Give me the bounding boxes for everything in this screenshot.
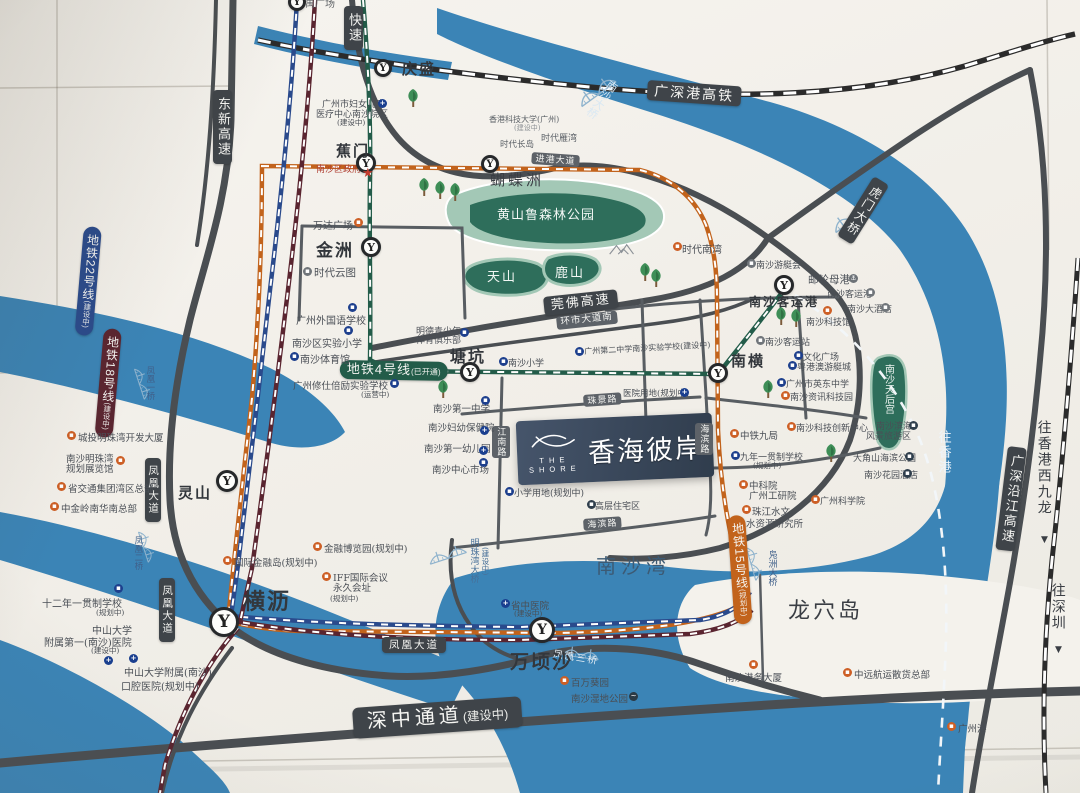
poi-label: 南沙客运站 [765,335,810,348]
station-label: 横沥 [243,584,291,616]
poi-label: (建设中) [91,645,119,656]
map-label: 南沙大桥 [584,78,619,120]
b-poi-icon: ▪ [731,451,740,460]
o-poi-icon: ▪ [50,502,59,511]
poi-label: 万达广场 [313,217,353,232]
poi-label: 水资源研究所 [746,516,803,530]
o-poi-icon: ▪ [322,572,331,581]
station-label: 金洲 [316,236,354,261]
road-badge: 海滨路 [583,516,622,531]
poi-label: 百万葵园 [571,675,609,689]
road-badge: 东新高速 [213,90,232,164]
o-poi-icon: ▪ [354,218,363,227]
road-badge: 虎门大桥 [837,176,889,245]
poi-label: 南沙区实验小学 [292,335,362,350]
w-poi-icon: ~ [629,692,638,701]
map-label: 凤凰二桥 [133,536,142,570]
poi-label: 粤港澳游艇城 [797,360,851,373]
poi-label: 广州工研院 [749,488,797,502]
poi-label: 邮轮母港 [808,272,850,287]
map-label: 南沙湾 [596,556,671,577]
poi-label: 南沙小学 [508,356,544,369]
map-label: 明珠湾大桥 [468,538,477,583]
o-poi-icon: ▪ [730,429,739,438]
map-label: 天山 [487,271,517,285]
road-badge: 深中通道(建设中) [352,696,523,739]
metro-station: Y [708,363,728,383]
poi-label: 中山大学附属(南沙) [124,664,212,679]
metro-station: Y [481,155,499,173]
poi-label: 南沙湿地公园 [571,691,628,705]
poi-label: 南沙游艇会 [756,258,801,271]
metro-station: Y [216,470,238,492]
road-badge: 进港大道 [531,152,580,168]
badge-status: (规划中) [738,589,749,617]
g-poi-icon: ▪ [303,267,312,276]
b-poi-icon: ▪ [344,326,353,335]
b-poi-icon: ▪ [788,361,797,370]
b-poi-icon: ▪ [348,303,357,312]
b-poi-icon: ▪ [290,352,299,361]
poi-label: 中远航运散货总部 [854,667,930,681]
o-poi-icon: ▪ [823,306,832,315]
poi-label: (规划中) [96,607,124,618]
poi-label: 口腔医院(规划中) [121,678,199,693]
landmark-star-icon: ★ [362,166,374,181]
metro-station: Y [209,607,239,637]
o-poi-icon: ▪ [781,391,790,400]
poi-label: 南沙港务大厦 [725,670,782,684]
poi-label: 南沙体育馆 [300,351,350,366]
map-label: 龙穴岛 [788,600,863,623]
poi-label: (规划中) [330,593,358,604]
poi-label: (运营中) [361,389,389,400]
poi-label: 广州市英东中学 [786,377,849,390]
b-poi-icon: ▪ [460,328,469,337]
road-badge: 广深沿江高速 [995,446,1026,552]
o-poi-icon: ▪ [673,242,682,251]
wall-map-photo: THE SHORE 香海彼岸 番禺广场蝴蝶洲黄山鲁森林公园天山鹿山南沙大桥香港科… [0,0,1080,793]
station-label: 南横 [731,350,765,371]
badge-status: (已开通) [411,367,441,377]
d-poi-icon: ▪ [587,500,596,509]
map-label: 凤凰一桥 [145,366,154,400]
poi-label: 时代南湾 [682,241,722,256]
road-badge: 凤凰大道 [382,637,446,653]
station-label: 南沙客运港 [749,293,819,310]
poi-label: 小学用地(规划中) [514,486,584,499]
o-poi-icon: ▪ [787,422,796,431]
poi-label: 南沙资讯科技园 [790,390,853,403]
map-label: 往香港 [936,430,950,475]
map-label: 往香港西九龙 [1036,420,1051,516]
road-badge: 珠景路 [583,392,622,407]
metro-station: Y [529,617,555,643]
g-poi-icon: ▪ [747,259,756,268]
o-poi-icon: ▪ [947,722,956,731]
badge-status: (建设中) [462,707,508,724]
g-poi-icon: ▪ [881,303,890,312]
o-poi-icon: ▪ [116,456,125,465]
h-poi-icon: + [480,426,489,435]
road-badge: 海滨路 [695,423,713,455]
h-poi-icon: + [479,446,488,455]
b-poi-icon: ▪ [390,379,399,388]
poi-label: 规划展览馆 [66,461,114,475]
poi-label: 时代云图 [314,265,356,280]
road-badge: 广深港高铁 [647,80,742,107]
poi-label: 广州港 [958,721,987,735]
station-label: 蕉门 [336,140,370,161]
map-label: 蝴蝶洲 [490,173,544,189]
s-poi-icon: ⚓ [849,274,858,283]
b-poi-icon: ▪ [481,396,490,405]
badge-status: (建设中) [81,301,92,329]
map-label: (建设中) [514,125,540,132]
map-label: 时代雁湾 [541,135,577,144]
o-poi-icon: ▪ [843,668,852,677]
o-poi-icon: ▪ [749,660,758,669]
o-poi-icon: ▪ [811,495,820,504]
o-poi-icon: ▪ [67,431,76,440]
poi-label: 南沙科技创新中心 [796,421,868,434]
road-badge: 地铁22号线(建设中) [75,226,102,336]
poi-label: 国际金融岛(规划中) [234,555,317,569]
map-label: 凫洲大桥 [766,550,775,586]
badge-status: (建设中) [101,403,112,431]
d-poi-icon: ▪ [903,469,912,478]
poi-label: 广州第二中学南沙实验学校(建设中) [584,339,711,357]
map-label: 往深圳 [1050,583,1065,631]
map-label: ▼ [1041,536,1048,545]
station-label: 塘坑 [450,343,486,367]
station-label: 万顷沙 [510,647,573,674]
metro-station: Y [774,275,794,295]
g-poi-icon: ▪ [866,288,875,297]
b-poi-icon: ▪ [479,458,488,467]
o-poi-icon: ▪ [223,556,232,565]
h-poi-icon: + [680,388,689,397]
poi-label: 省交通集团湾区总部 [68,481,154,495]
h-poi-icon: + [129,654,138,663]
map-label: 鹿山 [555,267,585,281]
b-poi-icon: ▪ [777,378,786,387]
poi-label: 广州外国语学校 [296,312,366,327]
poi-label: 中金岭南华南总部 [61,501,137,515]
o-poi-icon: ▪ [560,676,569,685]
metro-station: Y [374,59,392,77]
map-label: 南沙天后宫 [882,364,893,414]
road-badge: 快速 [344,6,363,50]
map-label: 南沙区政府 [316,166,361,175]
metro-station: Y [361,237,381,257]
map-label: 时代长岛 [500,141,534,150]
b-poi-icon: ▪ [794,351,803,360]
map-label: (建设中) [481,547,489,575]
poi-label: 高层住宅区 [595,499,640,512]
b-poi-icon: ▪ [499,357,508,366]
poi-label: 中铁九局 [740,428,778,442]
g-poi-icon: ▪ [756,336,765,345]
station-label: 庆盛 [402,58,436,79]
b-poi-icon: ▪ [575,347,584,356]
poi-label: 永久会址 [333,580,371,594]
h-poi-icon: + [378,99,387,108]
poi-label: 南沙科技馆 [806,315,851,328]
road-badge: 地铁18号线(建设中) [95,328,122,438]
b-poi-icon: ▪ [114,584,123,593]
d-poi-icon: ▪ [905,452,914,461]
poi-label: 城投明珠湾开发大厦 [78,430,164,444]
o-poi-icon: ▪ [742,505,751,514]
poi-label: (建设中) [337,117,365,128]
road-badge: 凤凰大道 [159,578,175,642]
o-poi-icon: ▪ [739,480,748,489]
b-poi-icon: ▪ [505,487,514,496]
h-poi-icon: + [104,656,113,665]
map-label: ▼ [1055,646,1062,655]
o-poi-icon: ▪ [57,482,66,491]
map-label: 黄山鲁森林公园 [497,209,595,223]
poi-label: 风景旅游区 [866,429,911,442]
h-poi-icon: + [501,599,510,608]
label-layer: 番禺广场蝴蝶洲黄山鲁森林公园天山鹿山南沙大桥香港科技大学(广州)(建设中)时代长… [0,0,1080,793]
poi-label: (规划中) [753,460,781,471]
poi-label: 金融博览园(规划中) [324,541,407,555]
road-badge: 地铁15号线(规划中) [727,515,752,625]
station-label: 灵山 [178,482,212,503]
o-poi-icon: ▪ [313,542,322,551]
poi-label: 广州科学院 [820,494,865,507]
